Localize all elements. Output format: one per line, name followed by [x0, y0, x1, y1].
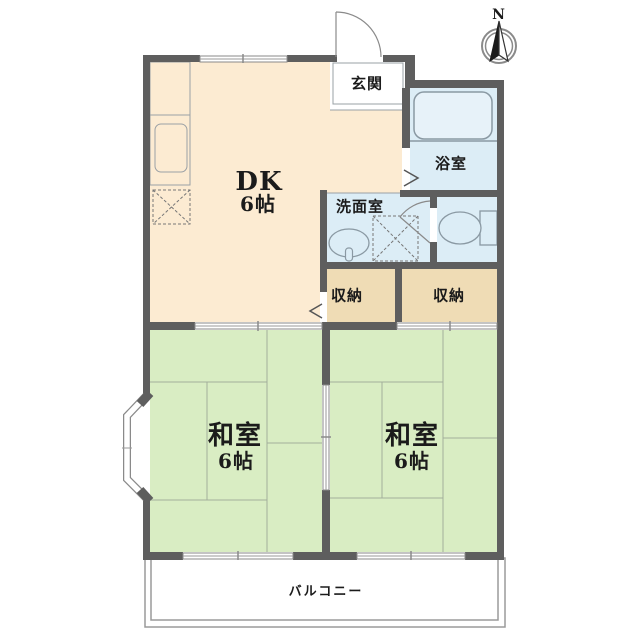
floorplan: DK 6帖 玄関 浴室 洗面室 収納 収納 和室 6帖 和室 6帖 バルコニー …	[0, 0, 640, 640]
compass	[482, 21, 516, 63]
toilet	[439, 211, 497, 245]
balcony-label: バルコニー	[289, 586, 364, 599]
storage-left-label: 収納	[331, 289, 363, 304]
storage-right-label: 収納	[433, 289, 465, 304]
compass-needle-dark	[490, 21, 499, 61]
toilet-door-opening	[430, 208, 437, 242]
dk-size-label: 6帖	[240, 194, 276, 214]
entrance-label: 玄関	[351, 77, 383, 92]
compass-needle-light	[499, 21, 508, 61]
floorplan-drawing	[0, 0, 640, 640]
japanese-room-right-label: 和室	[385, 423, 439, 449]
entrance-door	[336, 12, 381, 57]
compass-north-label: N	[492, 8, 506, 22]
japanese-room-right-size: 6帖	[394, 451, 430, 471]
japanese-room-left-size: 6帖	[218, 451, 254, 471]
washroom-label: 洗面室	[336, 200, 384, 215]
bay-window	[122, 393, 150, 501]
bathroom-label: 浴室	[435, 157, 467, 172]
japanese-room-left-label: 和室	[208, 423, 262, 449]
entrance-doorway	[337, 56, 383, 62]
bathtub	[410, 92, 497, 141]
